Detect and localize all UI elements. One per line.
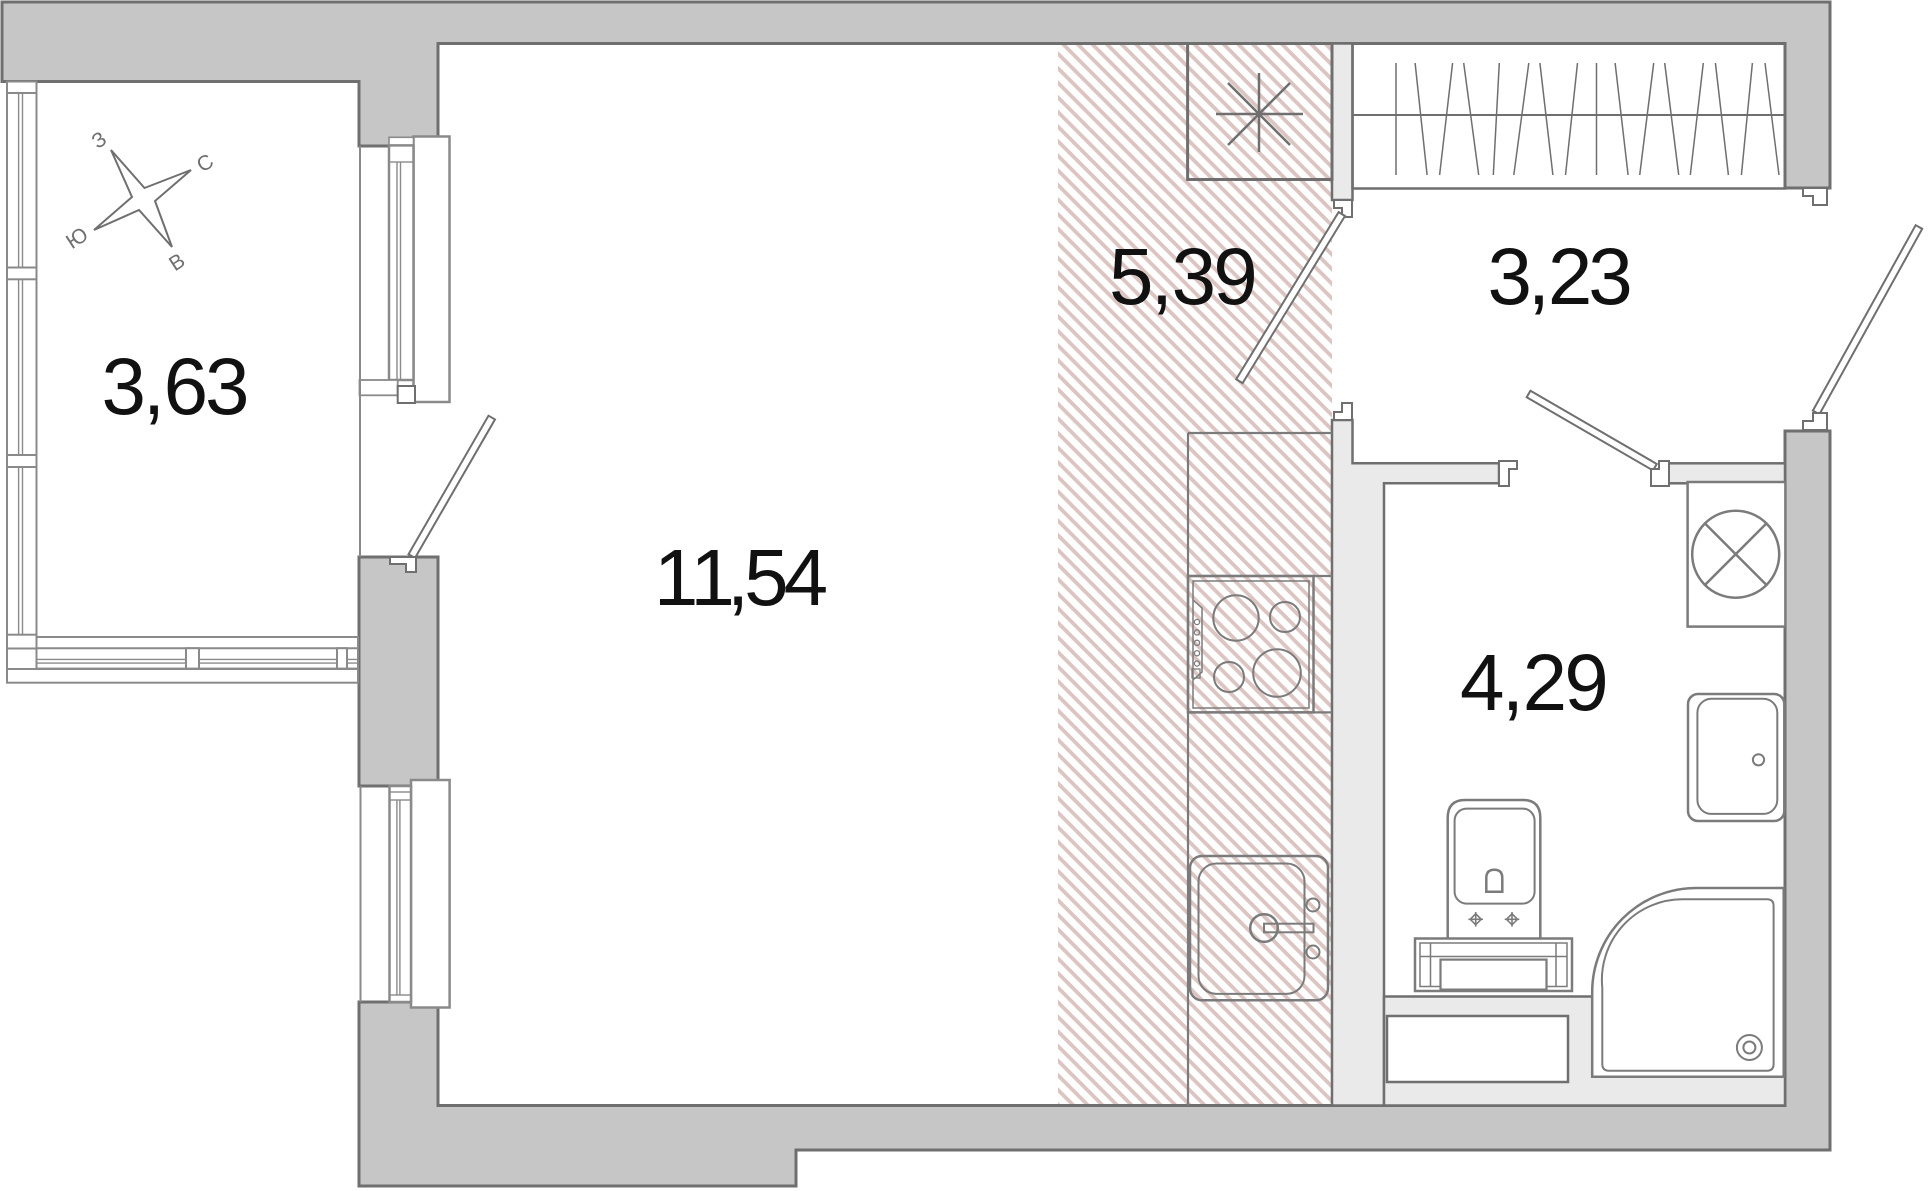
- svg-text:4,29: 4,29: [1460, 638, 1609, 727]
- svg-text:11,54: 11,54: [654, 533, 828, 622]
- svg-text:3,63: 3,63: [102, 342, 250, 431]
- svg-text:3,23: 3,23: [1488, 232, 1633, 321]
- svg-text:5,39: 5,39: [1109, 232, 1258, 321]
